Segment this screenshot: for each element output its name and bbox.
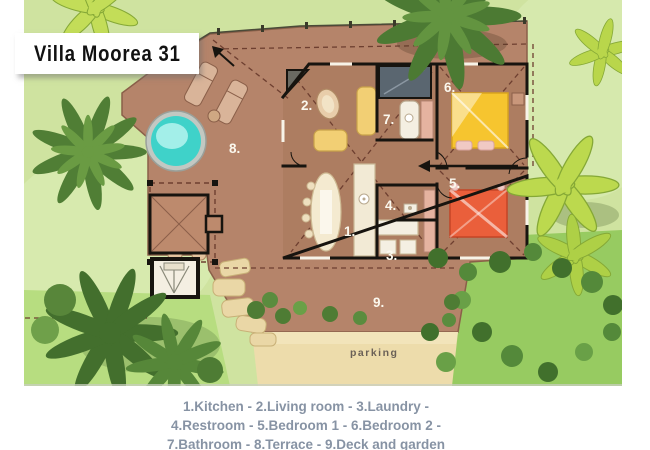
room-label-deck-garden: 9. <box>373 295 384 310</box>
room-label-kitchen: 1. <box>344 224 355 239</box>
room-legend: 1.Kitchen - 2.Living room - 3.Laundry - … <box>0 397 612 450</box>
parking-label: parking <box>350 347 398 359</box>
room-label-restroom: 4. <box>385 198 396 213</box>
room-label-bedroom-1: 5. <box>449 176 460 191</box>
screenshot-root: 1. 2. 3. 4. 5. 6. 7. 8. 9. parking Villa… <box>0 0 650 450</box>
room-label-bedroom-2: 6. <box>444 80 455 95</box>
spa-box <box>152 259 198 297</box>
plan-title: Villa Moorea 31 <box>34 41 181 67</box>
room-label-laundry: 3. <box>386 248 397 263</box>
legend-line-2: 4.Restroom - 5.Bedroom 1 - 6.Bedroom 2 - <box>0 416 612 435</box>
room-label-living-room: 2. <box>301 98 312 113</box>
pool <box>146 111 206 171</box>
room-label-terrace: 8. <box>229 141 240 156</box>
room-label-bathroom: 7. <box>383 112 394 127</box>
plan-title-box: Villa Moorea 31 <box>15 33 199 74</box>
legend-line-1: 1.Kitchen - 2.Living room - 3.Laundry - <box>0 397 612 416</box>
legend-line-3: 7.Bathroom - 8.Terrace - 9.Deck and gard… <box>0 435 612 450</box>
